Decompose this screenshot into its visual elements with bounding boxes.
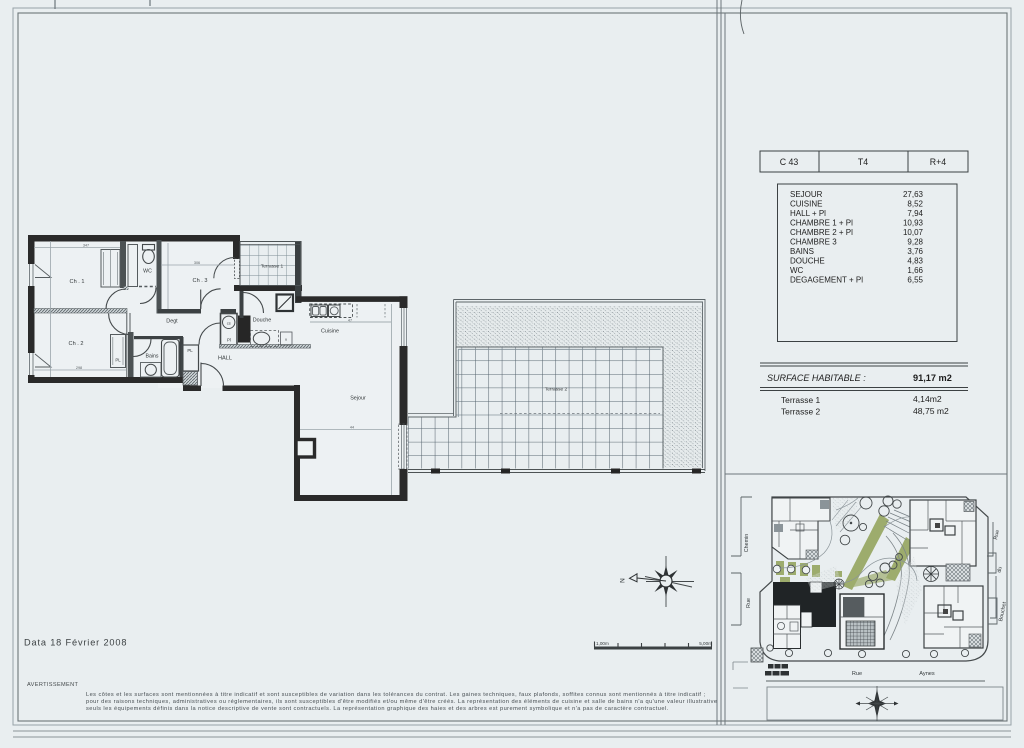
svg-text:4,83: 4,83 [907, 257, 923, 266]
svg-text:cs: cs [227, 320, 231, 325]
svg-text:Bains: Bains [146, 354, 159, 360]
svg-text:WC: WC [790, 266, 804, 275]
svg-text:Degt: Degt [166, 319, 178, 325]
svg-text:DEGAGEMENT + Pl: DEGAGEMENT + Pl [790, 276, 863, 285]
svg-text:27,63: 27,63 [903, 190, 924, 199]
svg-text:Cuisine: Cuisine [321, 329, 339, 335]
svg-text:CHAMBRE 2 + Pl: CHAMBRE 2 + Pl [790, 228, 853, 237]
svg-text:10,07: 10,07 [903, 228, 924, 237]
svg-text:Ch . 1: Ch . 1 [70, 279, 85, 285]
svg-text:Aynes: Aynes [919, 671, 935, 677]
svg-text:u: u [285, 338, 287, 342]
svg-text:WC: WC [143, 269, 152, 275]
svg-text:4,14m2: 4,14m2 [913, 394, 942, 404]
svg-text:CUISINE: CUISINE [790, 200, 822, 209]
svg-text:Ch . 2: Ch . 2 [69, 341, 84, 347]
svg-text:7,94: 7,94 [907, 209, 923, 218]
svg-text:C 43: C 43 [780, 157, 799, 167]
svg-text:8,52: 8,52 [907, 200, 923, 209]
svg-text:AVERTISSEMENT: AVERTISSEMENT [27, 682, 79, 688]
svg-text:pour des raisons techniques, a: pour des raisons techniques, administrat… [86, 699, 718, 705]
svg-text:48,75 m2: 48,75 m2 [913, 406, 949, 416]
svg-text:6,55: 6,55 [907, 276, 923, 285]
svg-text:Pl: Pl [227, 338, 231, 343]
svg-text:Terrasse 1: Terrasse 1 [261, 264, 284, 270]
svg-text:R+4: R+4 [930, 157, 946, 167]
svg-text:306: 306 [194, 261, 200, 265]
svg-text:DOUCHE: DOUCHE [790, 257, 825, 266]
svg-text:47: 47 [348, 318, 352, 322]
svg-text:HALL + Pl: HALL + Pl [790, 209, 826, 218]
svg-text:T4: T4 [858, 157, 868, 167]
svg-text:N: N [620, 578, 627, 583]
svg-text:44: 44 [350, 425, 354, 429]
svg-text:5,00m: 5,00m [699, 641, 712, 646]
svg-text:Terrasse 2: Terrasse 2 [545, 387, 568, 393]
svg-text:Data 18 Février 2008: Data 18 Février 2008 [24, 638, 127, 648]
svg-text:Sejour: Sejour [350, 396, 366, 402]
svg-text:Terrasse 1: Terrasse 1 [781, 395, 820, 405]
svg-text:Rue: Rue [746, 598, 752, 608]
svg-text:SURFACE HABITABLE :: SURFACE HABITABLE : [767, 373, 866, 383]
svg-text:Douche: Douche [253, 318, 272, 324]
svg-text:298: 298 [76, 366, 82, 370]
svg-text:347: 347 [83, 243, 89, 247]
svg-text:3,76: 3,76 [907, 247, 923, 256]
svg-text:Les côtes et les surfaces sont: Les côtes et les surfaces sont mentionné… [86, 692, 705, 698]
svg-text:SEJOUR: SEJOUR [790, 190, 823, 199]
svg-text:1,66: 1,66 [907, 266, 923, 275]
svg-text:Chemin: Chemin [744, 534, 750, 553]
svg-text:1,00m: 1,00m [596, 641, 609, 646]
svg-text:91,17 m2: 91,17 m2 [913, 373, 952, 383]
svg-text:PL: PL [187, 348, 193, 353]
svg-text:CHAMBRE 1 + Pl: CHAMBRE 1 + Pl [790, 219, 853, 228]
svg-text:Ch . 3: Ch . 3 [193, 278, 208, 284]
svg-text:du: du [996, 566, 1003, 573]
svg-text:CHAMBRE 3: CHAMBRE 3 [790, 238, 837, 247]
svg-text:9,28: 9,28 [907, 238, 923, 247]
svg-text:PL: PL [115, 358, 121, 363]
svg-text:HALL: HALL [218, 356, 232, 362]
svg-text:Terrasse 2: Terrasse 2 [781, 407, 820, 417]
svg-text:BAINS: BAINS [790, 247, 814, 256]
svg-text:10,93: 10,93 [903, 219, 924, 228]
svg-text:seuls les équipements défini: seuls les équipements définis dans la no… [86, 706, 669, 712]
svg-text:Rue: Rue [852, 671, 862, 677]
